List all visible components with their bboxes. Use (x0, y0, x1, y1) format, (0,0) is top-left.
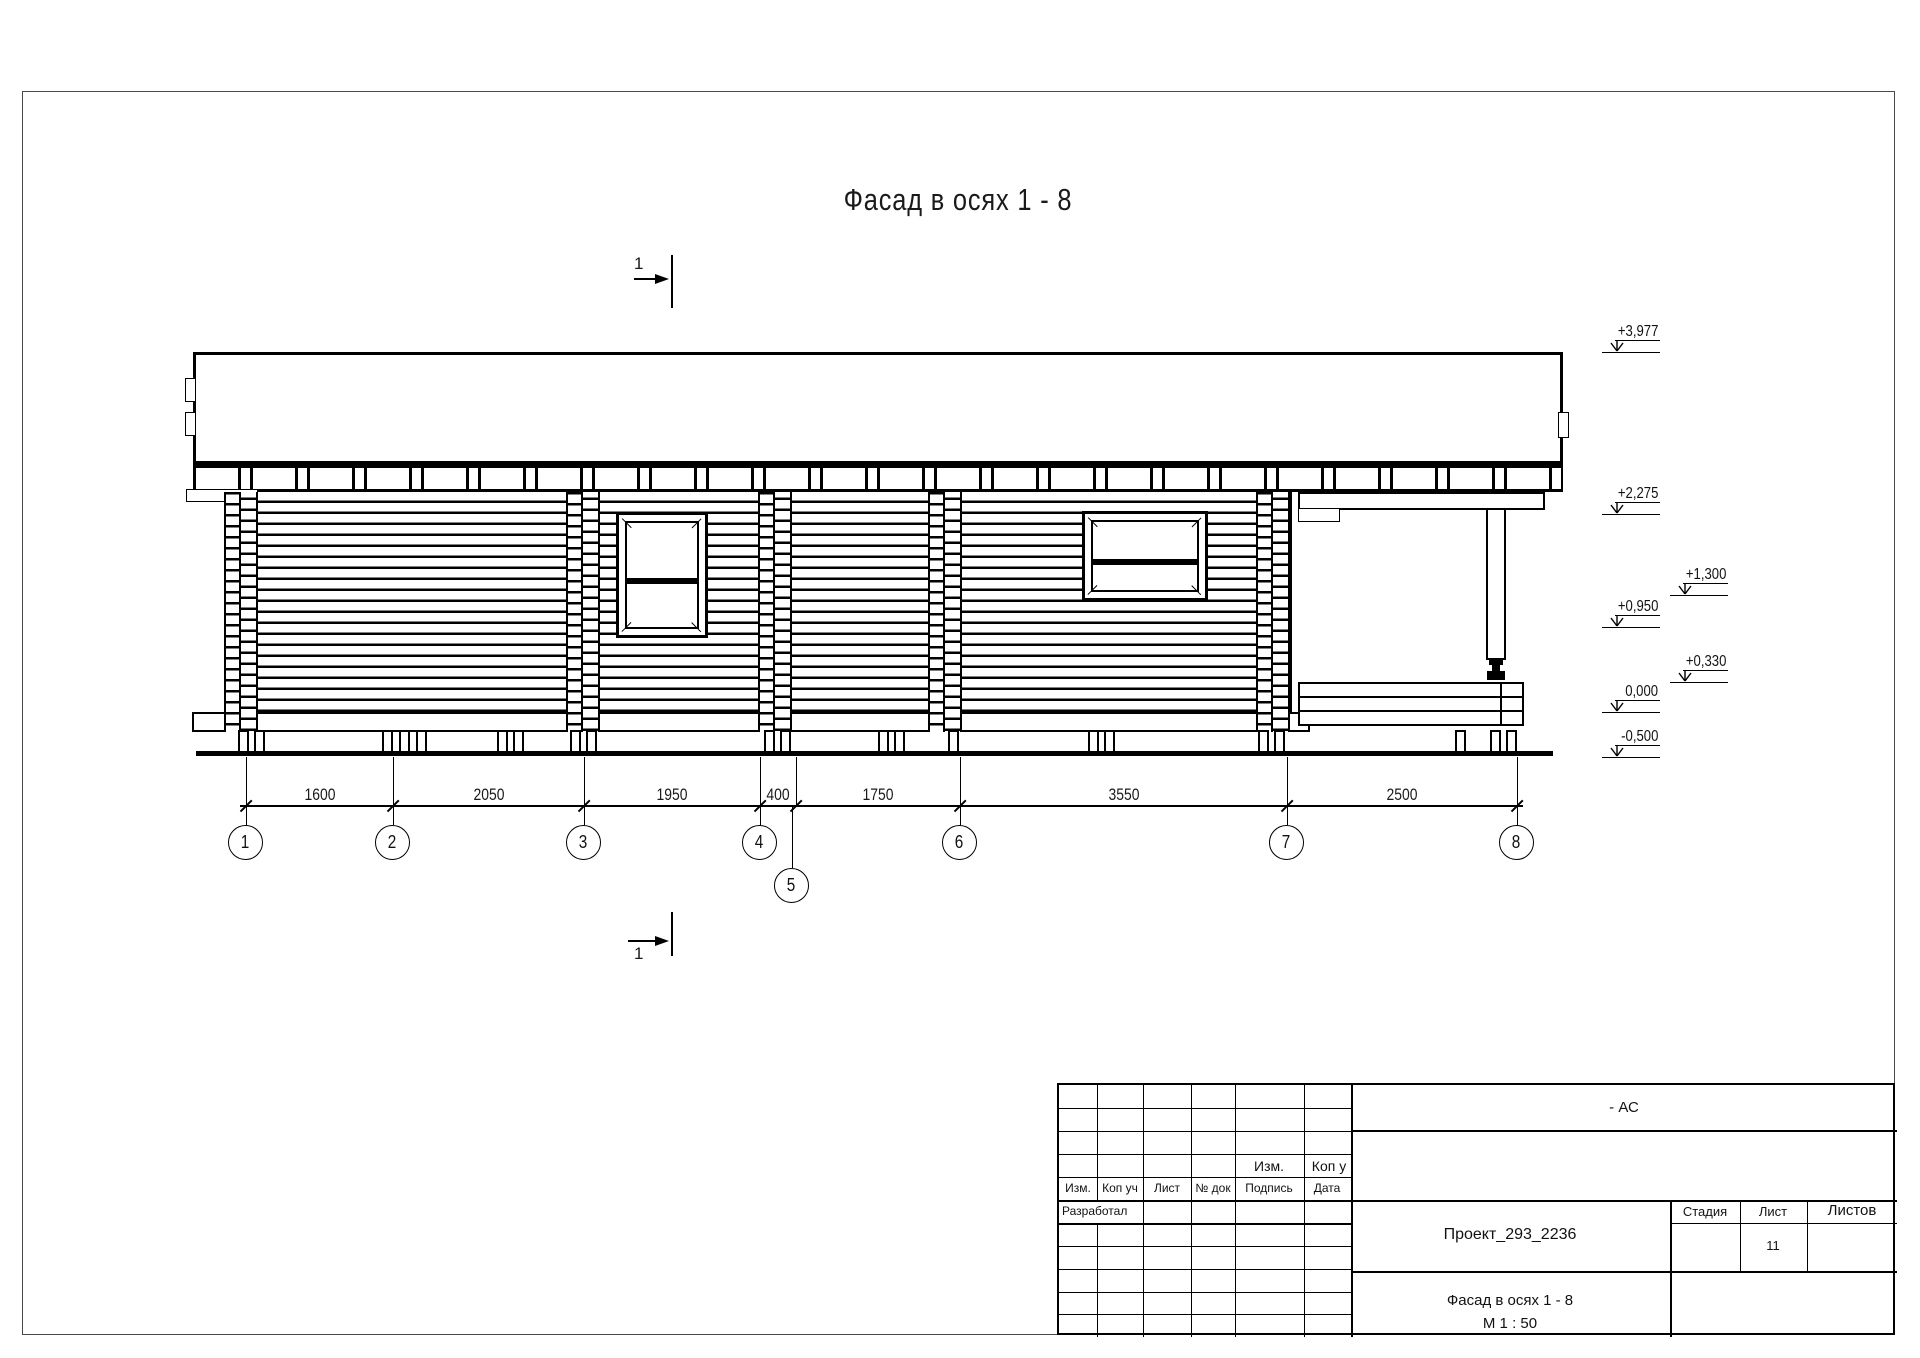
post-jack-base (1487, 671, 1505, 680)
tb-grid-line (1059, 1154, 1351, 1155)
tb-grid-line (1304, 1085, 1305, 1337)
axis-bubble-1: 1 (228, 825, 263, 860)
pier (570, 730, 581, 753)
elevation-value: 0,000 (1625, 683, 1658, 701)
tb-grid-line (1059, 1223, 1351, 1225)
section-label-bottom: 1 (634, 944, 643, 964)
tb-project-name: Проект_293_2236 (1444, 1226, 1577, 1244)
tb-grid-line (1143, 1085, 1144, 1337)
axis-label: 2 (388, 832, 397, 853)
tb-col-podpis: Подпись (1245, 1181, 1293, 1195)
pier (1088, 730, 1099, 753)
extension-line-axis-2 (393, 757, 394, 825)
pier (497, 730, 508, 753)
pier (1490, 730, 1501, 753)
tb-grid-line (1351, 1200, 1897, 1202)
axis-bubble-4: 4 (742, 825, 777, 860)
pier (254, 730, 265, 753)
pier (513, 730, 524, 753)
tb-scale: М 1 : 50 (1483, 1315, 1537, 1332)
elevation-mark-3977: +3,977 (1602, 323, 1660, 353)
tb-grid-line (1235, 1085, 1236, 1337)
tb-grid-line (1740, 1200, 1741, 1271)
tb-mini-kop: Коп у (1312, 1158, 1346, 1174)
porch-deck-band-3 (1298, 710, 1524, 726)
log-ends (775, 492, 792, 732)
tb-sheet-number: 11 (1766, 1238, 1780, 1253)
section-label-top: 1 (634, 254, 643, 274)
tb-grid-line (1059, 1177, 1351, 1178)
log-crossing-axis-6 (928, 492, 962, 732)
log-crossing-axis-3 (566, 492, 600, 732)
log-ends (583, 492, 600, 732)
extension-line-axis-7 (1287, 757, 1288, 825)
section-line-top-vertical (671, 255, 673, 308)
tb-grid-line (1059, 1314, 1351, 1315)
drawing-title: Фасад в осях 1 - 8 (844, 182, 1073, 218)
roof-left-notch-1 (185, 378, 196, 402)
elevation-mark-0950: +0,950 (1602, 598, 1660, 628)
axis-bubble-8: 8 (1499, 825, 1534, 860)
tb-grid-line (1191, 1085, 1192, 1337)
pier (878, 730, 889, 753)
elevation-mark-1300: +1,300 (1670, 566, 1728, 596)
pier (1104, 730, 1115, 753)
window-2 (1082, 511, 1208, 601)
pier (948, 730, 959, 753)
axis-label: 6 (955, 832, 964, 853)
pier (238, 730, 249, 753)
window-1-sash (625, 521, 699, 629)
tb-grid-line (1670, 1223, 1897, 1224)
elevation-level-line (1602, 352, 1660, 353)
tb-sheet-label: Лист (1759, 1204, 1787, 1219)
dimension-line (240, 805, 1523, 807)
pier (586, 730, 597, 753)
extension-line-axis-8 (1517, 757, 1518, 825)
tb-stage-label: Стадия (1683, 1204, 1727, 1219)
elevation-value: +2,275 (1617, 485, 1658, 503)
roof-left-notch-2 (185, 412, 196, 436)
log-ends (1256, 492, 1273, 732)
dim-value-1-2: 1600 (304, 785, 335, 805)
base-band (192, 712, 1310, 732)
tb-mini-izm: Изм. (1254, 1158, 1284, 1174)
axis-label: 4 (755, 832, 764, 853)
tb-grid-line (1097, 1223, 1098, 1337)
window-1 (616, 512, 708, 638)
porch-deck-end-joint (1500, 682, 1502, 726)
ground-line (196, 751, 1553, 756)
tb-sheets-label: Листов (1828, 1202, 1877, 1219)
pier (382, 730, 393, 753)
roof-fascia (193, 352, 1563, 464)
dim-value-6-7: 3550 (1108, 785, 1139, 805)
tb-col-list: Лист (1154, 1181, 1180, 1195)
pier (1506, 730, 1517, 753)
drawing-sheet: Фасад в осях 1 - 8 1 (0, 0, 1920, 1358)
rafter-tails-row (193, 464, 1563, 492)
title-block: - АС Изм. Коп у Изм. Коп уч Лист № док П… (1057, 1083, 1895, 1335)
extension-line-axis-6 (960, 757, 961, 825)
log-crossing-axis-1 (224, 492, 258, 732)
log-ends (758, 492, 775, 732)
elevation-level-line (1670, 682, 1728, 683)
window-2-crossbar (1093, 559, 1197, 565)
elevation-value: +0,950 (1617, 598, 1658, 616)
tb-grid-line (1351, 1085, 1353, 1337)
tb-doc-code: - АС (1609, 1099, 1639, 1116)
elevation-level-line (1670, 595, 1728, 596)
post-jack-top (1489, 658, 1503, 665)
tb-grid-line (1059, 1200, 1351, 1202)
section-arrow-bottom (655, 936, 669, 946)
log-ends (241, 492, 258, 732)
tb-grid-line (1351, 1130, 1897, 1132)
tb-drawing-name: Фасад в осях 1 - 8 (1447, 1292, 1573, 1309)
tb-col-izm: Изм. (1065, 1181, 1091, 1195)
dim-value-3-4: 1950 (656, 785, 687, 805)
pier (894, 730, 905, 753)
pier (1258, 730, 1269, 753)
pier (1455, 730, 1466, 753)
elevation-value: +3,977 (1617, 323, 1658, 341)
elevation-level-line (1602, 514, 1660, 515)
window-2-sash (1091, 520, 1199, 592)
pier (780, 730, 791, 753)
tb-developed-label: Разработал (1062, 1204, 1127, 1218)
axis-bubble-3: 3 (566, 825, 601, 860)
tb-grid-line (1059, 1292, 1351, 1293)
axis-label: 1 (241, 832, 250, 853)
log-ends (945, 492, 962, 732)
tb-grid-line (1059, 1131, 1351, 1132)
extension-line-axis-1 (246, 757, 247, 825)
tb-col-ndok: № док (1195, 1181, 1230, 1195)
tb-grid-line (1059, 1246, 1351, 1247)
axis-label: 8 (1512, 832, 1521, 853)
log-ends (928, 492, 945, 732)
dim-value-4-5: 400 (766, 785, 789, 805)
elevation-mark-minus0500: -0,500 (1602, 728, 1660, 758)
window-1-crossbar (627, 578, 697, 584)
elevation-mark-2275: +2,275 (1602, 485, 1660, 515)
axis-bubble-7: 7 (1269, 825, 1304, 860)
elevation-value: +1,300 (1685, 566, 1726, 584)
elevation-level-line (1602, 757, 1660, 758)
axis-label: 5 (787, 875, 796, 896)
pier (416, 730, 427, 753)
extension-line-axis-5 (796, 757, 797, 806)
elevation-value: -0,500 (1621, 728, 1658, 746)
dim-value-5-6: 1750 (862, 785, 893, 805)
extension-line-axis-3 (584, 757, 585, 825)
tb-col-data: Дата (1314, 1181, 1341, 1195)
elevation-mark-0000: 0,000 (1602, 683, 1660, 713)
log-crossing-axis-7 (1256, 492, 1290, 732)
axis-label: 7 (1282, 832, 1291, 853)
tb-grid-line (1059, 1269, 1351, 1270)
log-ends (566, 492, 583, 732)
section-arrow-top (655, 274, 669, 284)
pier (764, 730, 775, 753)
axis-bubble-6: 6 (942, 825, 977, 860)
elevation-level-line (1602, 712, 1660, 713)
axis-bubble-2: 2 (375, 825, 410, 860)
dim-value-2-3: 2050 (473, 785, 504, 805)
axis-label: 3 (579, 832, 588, 853)
extension-line-axis-4 (760, 757, 761, 825)
axis-bubble-5: 5 (774, 868, 809, 903)
pier (1274, 730, 1285, 753)
pier (399, 730, 410, 753)
tb-grid-line (1351, 1271, 1897, 1273)
tb-grid-line (1059, 1108, 1351, 1109)
roof-right-notch (1558, 412, 1569, 438)
extension-line-axis-5-leader (792, 806, 793, 868)
log-ends (224, 492, 241, 732)
porch-post (1486, 508, 1506, 660)
tb-grid-line (1807, 1200, 1808, 1271)
tb-grid-line (1097, 1085, 1098, 1200)
porch-header-step (1298, 508, 1340, 522)
log-crossing-axis-4-5 (758, 492, 792, 732)
tb-col-kopuch: Коп уч (1102, 1181, 1138, 1195)
tb-grid-line (1670, 1200, 1672, 1337)
elevation-mark-0330: +0,330 (1670, 653, 1728, 683)
elevation-level-line (1602, 627, 1660, 628)
dim-value-7-8: 2500 (1386, 785, 1417, 805)
section-line-bottom-vertical (671, 912, 673, 956)
log-ends (1273, 492, 1290, 732)
elevation-value: +0,330 (1685, 653, 1726, 671)
